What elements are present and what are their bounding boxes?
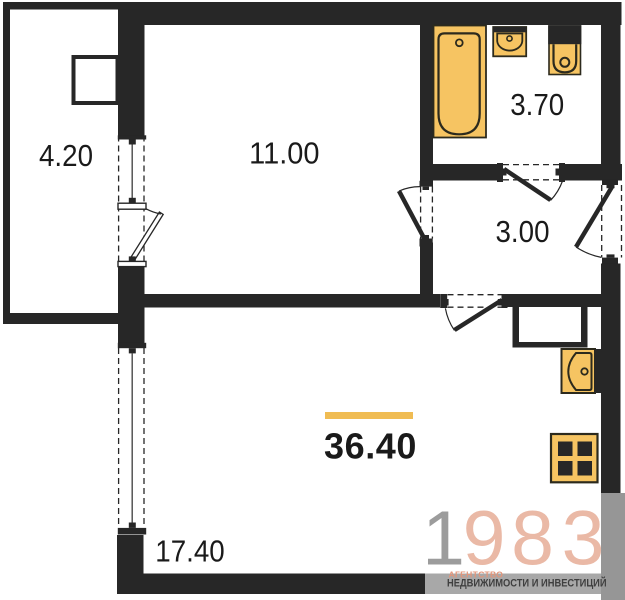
svg-text:3.70: 3.70 [510,89,564,122]
svg-text:НЕДВИЖИМОСТИ И ИНВЕСТИЦИЙ: НЕДВИЖИМОСТИ И ИНВЕСТИЦИЙ [447,576,607,590]
svg-text:36.40: 36.40 [324,426,417,467]
svg-text:3: 3 [562,496,605,582]
svg-text:3.00: 3.00 [496,216,550,249]
svg-text:17.40: 17.40 [155,535,224,568]
svg-text:8: 8 [511,496,554,582]
svg-text:4.20: 4.20 [39,140,93,173]
svg-text:11.00: 11.00 [249,137,319,171]
